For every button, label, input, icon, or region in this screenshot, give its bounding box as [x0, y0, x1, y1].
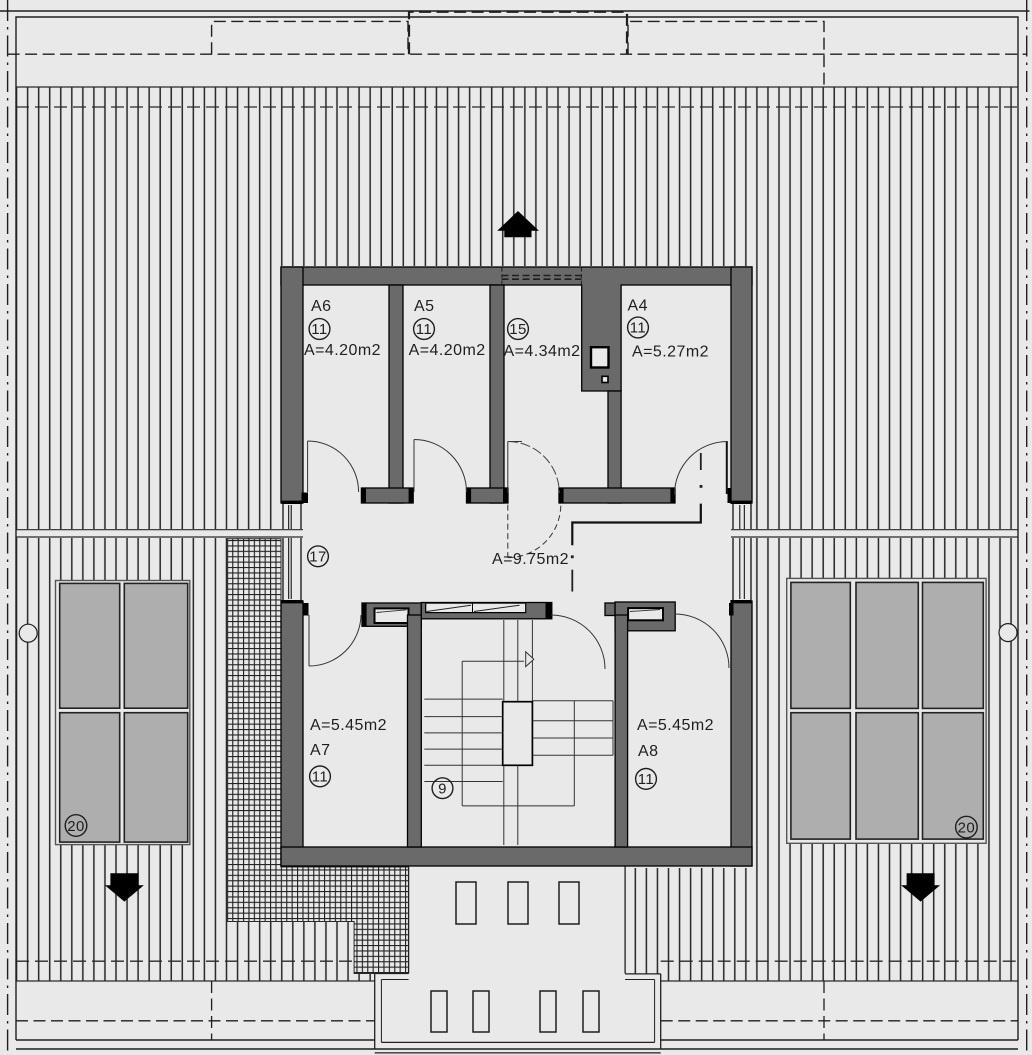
svg-text:A7: A7 [310, 742, 330, 759]
svg-text:11: 11 [630, 320, 646, 337]
svg-text:9: 9 [438, 780, 447, 797]
svg-text:A=4.20m2: A=4.20m2 [304, 342, 381, 359]
svg-text:11: 11 [416, 321, 432, 338]
svg-text:11: 11 [311, 321, 327, 338]
svg-text:20: 20 [958, 820, 976, 837]
svg-text:A4: A4 [628, 298, 648, 315]
svg-text:11: 11 [312, 769, 328, 786]
svg-text:A=5.45m2: A=5.45m2 [310, 717, 387, 734]
svg-text:A=9.75m2: A=9.75m2 [492, 551, 569, 568]
svg-text:15: 15 [509, 321, 527, 338]
svg-text:17: 17 [309, 549, 327, 566]
svg-text:A=5.45m2: A=5.45m2 [637, 717, 714, 734]
svg-text:20: 20 [67, 818, 85, 835]
svg-text:A=5.27m2: A=5.27m2 [632, 344, 709, 361]
svg-text:A=4.34m2: A=4.34m2 [504, 343, 581, 360]
svg-text:A8: A8 [638, 743, 658, 760]
svg-text:11: 11 [638, 771, 654, 788]
svg-text:A6: A6 [311, 298, 331, 315]
svg-text:A=4.20m2: A=4.20m2 [409, 342, 486, 359]
svg-text:A5: A5 [414, 298, 434, 315]
